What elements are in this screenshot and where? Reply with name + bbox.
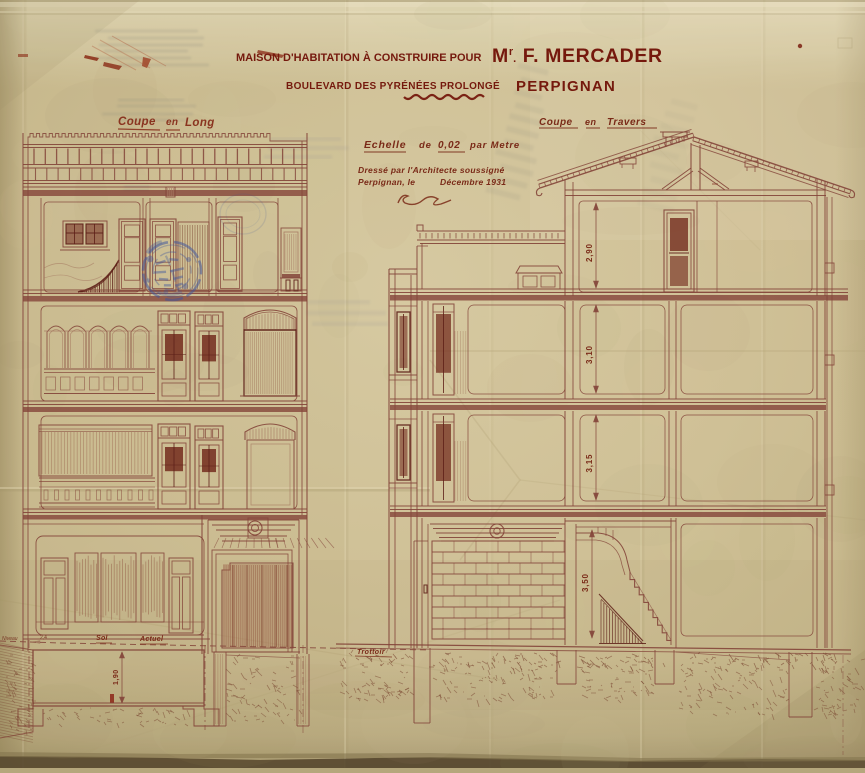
svg-text:Actuel: Actuel	[139, 636, 164, 643]
svg-text:en: en	[166, 117, 178, 128]
svg-text:3,10: 3,10	[585, 345, 594, 364]
svg-text:Coupe: Coupe	[539, 117, 573, 128]
svg-text:Niveau: Niveau	[2, 636, 18, 642]
svg-text:par Metre: par Metre	[469, 140, 520, 151]
svg-text:2,4: 2,4	[40, 635, 47, 641]
svg-text:1,90: 1,90	[113, 669, 120, 685]
svg-text:Long: Long	[185, 117, 215, 129]
svg-text:Dressé par l'Architecte soussi: Dressé par l'Architecte soussigné	[358, 165, 505, 175]
svg-text:3,15: 3,15	[585, 454, 594, 473]
svg-text:de: de	[419, 140, 432, 151]
svg-text:BOULEVARD DES PYRÉNÉES PROLONG: BOULEVARD DES PYRÉNÉES PROLONGÉ	[286, 79, 500, 92]
svg-text:2,90: 2,90	[585, 243, 594, 262]
svg-text:PERPIGNAN: PERPIGNAN	[516, 78, 616, 95]
svg-text:en: en	[585, 117, 597, 127]
svg-text:MAISON D'HABITATION À CONSTRUI: MAISON D'HABITATION À CONSTRUIRE POUR	[236, 51, 481, 64]
svg-text:Trottoir: Trottoir	[357, 649, 386, 656]
svg-text:Coupe: Coupe	[118, 116, 156, 128]
svg-text:Décembre 1931: Décembre 1931	[440, 177, 506, 187]
svg-text:0,02: 0,02	[438, 140, 461, 151]
svg-text:Perpignan, le: Perpignan, le	[358, 177, 415, 187]
svg-text:Sol: Sol	[96, 635, 109, 642]
svg-text:Echelle: Echelle	[364, 139, 406, 151]
svg-text:Mr. F. MERCADER: Mr. F. MERCADER	[492, 45, 663, 67]
svg-text:3,50: 3,50	[581, 573, 590, 592]
svg-text:Travers: Travers	[607, 117, 646, 128]
